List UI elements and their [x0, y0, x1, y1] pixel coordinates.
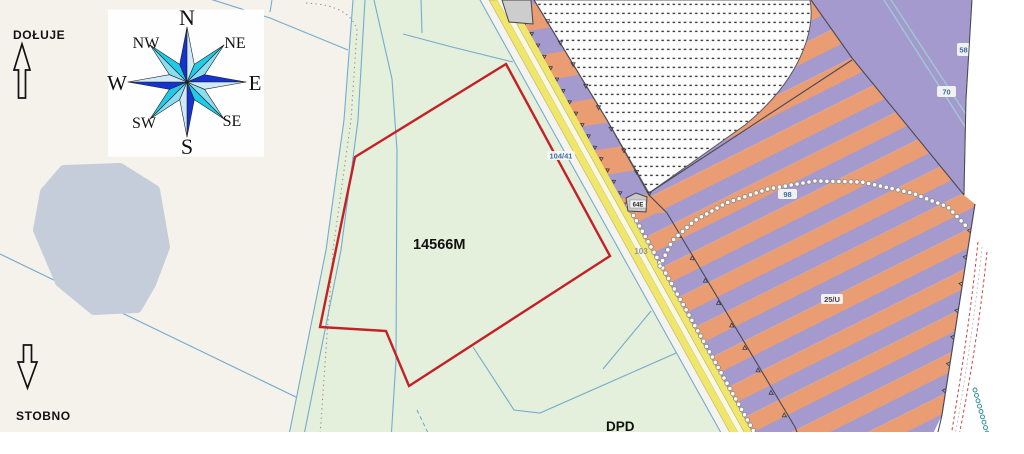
svg-text:14566M: 14566M: [413, 237, 465, 253]
svg-text:SE: SE: [223, 113, 242, 130]
svg-text:SW: SW: [132, 115, 157, 132]
svg-text:64E: 64E: [633, 203, 644, 209]
svg-text:STOBNO: STOBNO: [16, 409, 71, 423]
svg-text:S: S: [181, 134, 193, 159]
svg-text:E: E: [249, 71, 262, 95]
svg-text:W: W: [107, 71, 127, 95]
svg-text:NE: NE: [224, 35, 245, 52]
svg-text:25/U: 25/U: [824, 295, 840, 304]
svg-text:DPD: DPD: [606, 419, 635, 434]
svg-text:103: 103: [634, 247, 648, 256]
svg-text:NW: NW: [133, 35, 161, 52]
svg-text:98: 98: [783, 190, 791, 199]
svg-text:104/41: 104/41: [550, 152, 573, 161]
svg-text:DOŁUJE: DOŁUJE: [13, 28, 65, 42]
svg-text:70: 70: [942, 88, 950, 97]
svg-text:N: N: [179, 5, 195, 30]
svg-text:58: 58: [959, 46, 967, 55]
